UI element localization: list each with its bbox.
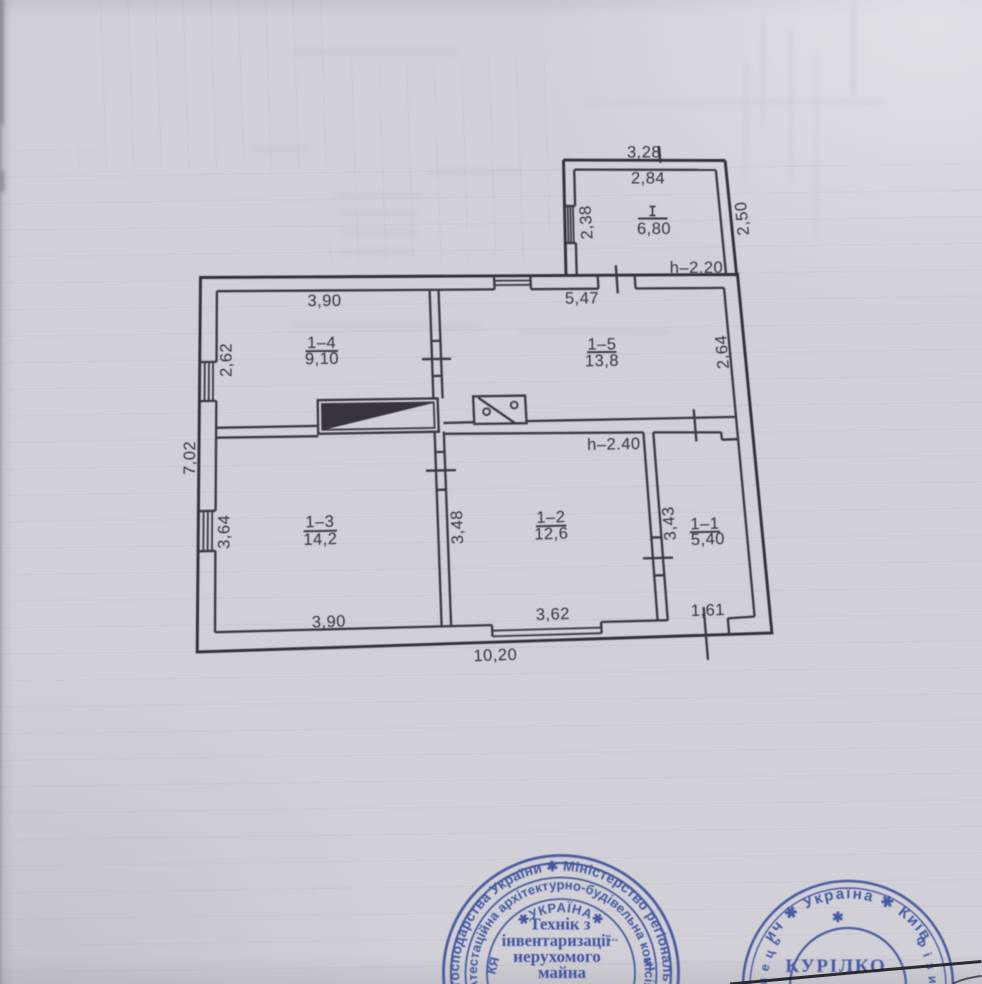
- svg-text:3,90: 3,90: [312, 612, 347, 631]
- svg-text:7,02: 7,02: [181, 441, 199, 475]
- svg-text:14,2: 14,2: [303, 530, 338, 549]
- svg-text:9,10: 9,10: [305, 350, 339, 368]
- svg-text:h–2.40: h–2.40: [587, 435, 641, 454]
- svg-text:12,6: 12,6: [534, 525, 569, 544]
- svg-text:2,62: 2,62: [217, 343, 235, 377]
- svg-text:...: ...: [608, 930, 618, 944]
- svg-text:2,64: 2,64: [712, 334, 733, 370]
- svg-text:3,64: 3,64: [215, 515, 233, 549]
- svg-text:ого господарства України ✱ Мін: ого господарства України ✱ Міністерство …: [0, 0, 676, 984]
- svg-text:6,80: 6,80: [637, 220, 671, 238]
- svg-text:✱: ✱: [832, 909, 844, 925]
- svg-text:5,47: 5,47: [565, 289, 599, 307]
- svg-text:3,62: 3,62: [536, 605, 571, 624]
- svg-text:майна: майна: [538, 963, 587, 982]
- svg-text:3,90: 3,90: [307, 292, 341, 310]
- svg-text:h–2.20: h–2.20: [670, 259, 724, 277]
- svg-text:3,28: 3,28: [627, 143, 661, 161]
- svg-text:3,48: 3,48: [448, 510, 467, 545]
- svg-text:КЯ: КЯ: [483, 955, 502, 976]
- svg-text:3,43: 3,43: [659, 506, 680, 541]
- svg-text:ич ✱ Україна ✱ Київ: ич ✱ Україна ✱ Київ: [761, 885, 936, 944]
- svg-text:1,61: 1,61: [691, 601, 726, 620]
- svg-text:2,38: 2,38: [576, 205, 596, 240]
- svg-text:10,20: 10,20: [473, 646, 517, 666]
- svg-text:13,8: 13,8: [585, 352, 619, 370]
- svg-text:2,84: 2,84: [631, 169, 665, 187]
- svg-text:2,50: 2,50: [732, 201, 753, 237]
- svg-text:1–3: 1–3: [305, 513, 334, 532]
